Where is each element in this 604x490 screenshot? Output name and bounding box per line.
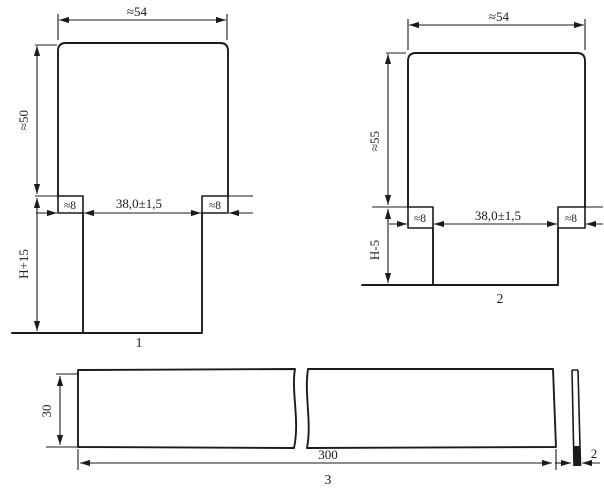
part3-height-label: 30 [39, 405, 54, 418]
part3-number: 3 [325, 472, 332, 487]
part1-slot-label: 38,0±1,5 [116, 196, 162, 211]
part3-extension-lines [46, 374, 556, 470]
part1-legs [12, 213, 202, 333]
part2-extension-lines [372, 19, 603, 207]
part1-view: ≈54 ≈50 ≈8 ≈8 38,0±1,5 H+15 1 [12, 4, 253, 350]
part3-thickness-label: 2 [591, 446, 598, 461]
part2-width-label: ≈54 [489, 9, 510, 24]
part3-length-label: 300 [318, 447, 338, 462]
part2-height-label: ≈55 [367, 131, 382, 151]
part2-legs [362, 228, 558, 285]
part2-body-outline [408, 53, 585, 207]
part3-edge-view-solid [574, 446, 581, 466]
part1-number: 1 [136, 335, 143, 350]
part1-leg-label: H+15 [16, 249, 31, 279]
part1-extension-lines [35, 14, 253, 196]
part3-strip-left [78, 369, 296, 448]
part1-height-label: ≈50 [16, 110, 31, 130]
part1-width-label: ≈54 [127, 4, 148, 19]
part2-number: 2 [497, 291, 504, 306]
part2-leg-label: H-5 [367, 240, 382, 260]
part1-tab-left-label: ≈8 [64, 200, 76, 212]
part2-tab-right-label: ≈8 [565, 213, 577, 225]
part3-strip-right [307, 369, 556, 448]
technical-drawing: ≈54 ≈50 ≈8 ≈8 38,0±1,5 H+15 1 ≈54 ≈55 ≈8… [0, 0, 604, 490]
part2-slot-label: 38,0±1,5 [475, 208, 521, 223]
part2-tab-left-label: ≈8 [414, 213, 426, 225]
part1-body-outline [58, 43, 228, 196]
part2-view: ≈54 ≈55 ≈8 ≈8 38,0±1,5 H-5 2 [362, 9, 603, 306]
drawing-sheet: ≈54 ≈50 ≈8 ≈8 38,0±1,5 H+15 1 ≈54 ≈55 ≈8… [0, 0, 604, 490]
part1-tab-right-label: ≈8 [209, 200, 221, 212]
part3-view: 30 300 2 3 [39, 369, 600, 487]
